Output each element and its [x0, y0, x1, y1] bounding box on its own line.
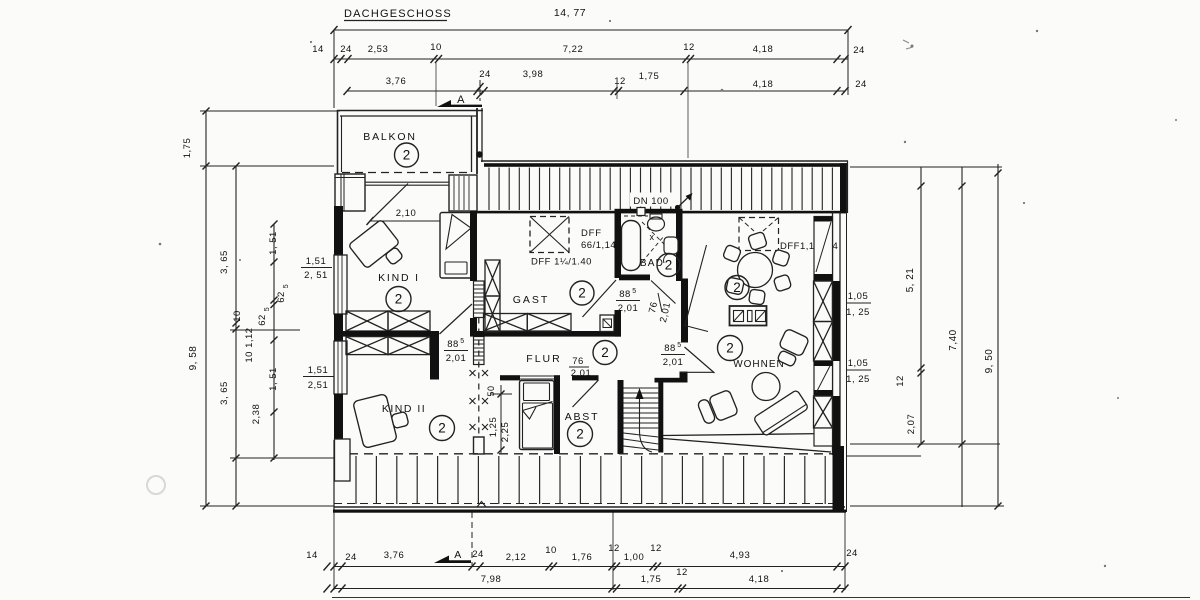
svg-text:12: 12	[614, 76, 626, 87]
svg-text:2: 2	[726, 341, 734, 356]
svg-text:4,18: 4,18	[753, 44, 774, 55]
svg-text:2: 2	[665, 258, 673, 273]
svg-text:24: 24	[855, 79, 867, 90]
svg-text:2,38: 2,38	[251, 404, 262, 425]
svg-text:1,75: 1,75	[182, 138, 193, 159]
svg-text:5: 5	[632, 288, 636, 295]
svg-text:88: 88	[447, 339, 459, 350]
svg-text:GAST: GAST	[513, 294, 550, 306]
svg-text:2,01: 2,01	[663, 357, 684, 368]
svg-text:12: 12	[683, 42, 695, 53]
svg-text:2: 2	[403, 148, 411, 163]
svg-text:KIND II: KIND II	[382, 403, 426, 415]
svg-text:1, 25: 1, 25	[846, 307, 870, 318]
svg-text:1,76: 1,76	[572, 552, 593, 563]
svg-text:2,12: 2,12	[506, 552, 527, 563]
svg-text:KIND I: KIND I	[378, 272, 420, 284]
svg-text:88: 88	[619, 289, 631, 300]
svg-text:1,75: 1,75	[639, 71, 660, 82]
svg-text:9, 58: 9, 58	[188, 346, 199, 371]
svg-text:62: 62	[276, 291, 287, 303]
svg-text:5: 5	[677, 342, 681, 349]
svg-text:BAD: BAD	[640, 258, 664, 269]
svg-text:1,00: 1,00	[624, 552, 645, 563]
svg-text:2,01: 2,01	[618, 303, 639, 314]
svg-text:10: 10	[232, 310, 243, 322]
svg-text:7,98: 7,98	[481, 574, 502, 585]
svg-text:2,07: 2,07	[906, 414, 917, 435]
svg-text:76: 76	[572, 356, 584, 367]
svg-text:14: 14	[312, 44, 324, 55]
svg-text:2: 2	[578, 286, 586, 301]
svg-text:1, 25: 1, 25	[846, 374, 870, 385]
svg-text:3,98: 3,98	[523, 69, 544, 80]
svg-text:2,10: 2,10	[396, 208, 417, 219]
svg-text:24: 24	[853, 45, 865, 56]
svg-text:4,93: 4,93	[730, 550, 751, 561]
svg-text:12: 12	[895, 375, 906, 387]
svg-text:24: 24	[472, 549, 484, 560]
svg-text:2: 2	[438, 421, 446, 436]
svg-text:66/1,14: 66/1,14	[581, 240, 616, 251]
svg-text:24: 24	[846, 548, 858, 559]
svg-text:12: 12	[608, 543, 620, 554]
svg-text:62: 62	[257, 314, 268, 326]
svg-text:2,51: 2,51	[308, 380, 329, 391]
svg-text:DN 100: DN 100	[633, 196, 668, 207]
svg-text:DACHGESCHOSS: DACHGESCHOSS	[344, 8, 452, 20]
svg-text:10: 10	[430, 42, 442, 53]
svg-text:DFF: DFF	[581, 228, 602, 239]
svg-text:5: 5	[460, 338, 464, 345]
svg-text:FLUR: FLUR	[526, 353, 561, 365]
svg-text:2: 2	[601, 345, 609, 360]
svg-text:1,51: 1,51	[308, 365, 329, 376]
svg-text:2: 2	[576, 427, 584, 442]
svg-text:2,01: 2,01	[446, 353, 467, 364]
svg-text:12: 12	[650, 543, 662, 554]
svg-text:4,18: 4,18	[753, 79, 774, 90]
svg-text:2,53: 2,53	[368, 44, 389, 55]
svg-text:1,05: 1,05	[848, 291, 869, 302]
svg-text:14, 77: 14, 77	[554, 7, 586, 19]
svg-text:1, 51: 1, 51	[268, 367, 279, 391]
svg-text:DFF 1¼/1.40: DFF 1¼/1.40	[531, 257, 592, 268]
svg-text:1,75: 1,75	[641, 574, 662, 585]
svg-text:2,25: 2,25	[500, 422, 511, 443]
svg-text:5, 21: 5, 21	[905, 268, 916, 293]
svg-text:7,40: 7,40	[948, 329, 959, 350]
svg-text:3,76: 3,76	[386, 76, 407, 87]
svg-text:24: 24	[479, 69, 491, 80]
svg-text:4,18: 4,18	[749, 574, 770, 585]
svg-text:3, 65: 3, 65	[219, 381, 230, 405]
svg-text:9, 50: 9, 50	[984, 349, 995, 374]
svg-text:50: 50	[486, 385, 496, 396]
svg-text:14: 14	[306, 550, 318, 561]
svg-text:WOHNEN: WOHNEN	[733, 359, 785, 370]
svg-text:3, 65: 3, 65	[219, 250, 230, 274]
svg-text:10: 10	[545, 545, 557, 556]
svg-text:1, 51: 1, 51	[268, 231, 279, 255]
svg-text:24: 24	[345, 552, 357, 563]
svg-text:A: A	[457, 94, 465, 106]
svg-text:1,25: 1,25	[488, 417, 499, 438]
svg-text:10 1,12: 10 1,12	[244, 327, 255, 362]
svg-text:1,05: 1,05	[848, 358, 869, 369]
svg-text:3,76: 3,76	[384, 550, 405, 561]
svg-text:24: 24	[340, 44, 352, 55]
svg-text:BALKON: BALKON	[363, 131, 416, 143]
svg-text:7,22: 7,22	[563, 44, 584, 55]
svg-text:2, 51: 2, 51	[304, 270, 328, 281]
svg-text:2: 2	[733, 280, 741, 295]
svg-text:5: 5	[283, 284, 290, 288]
svg-text:12: 12	[676, 567, 688, 578]
svg-text:1,51: 1,51	[306, 256, 327, 267]
svg-text:88: 88	[664, 343, 676, 354]
svg-text:A: A	[454, 549, 462, 561]
svg-text:2: 2	[395, 292, 403, 307]
svg-text:5: 5	[264, 307, 271, 311]
